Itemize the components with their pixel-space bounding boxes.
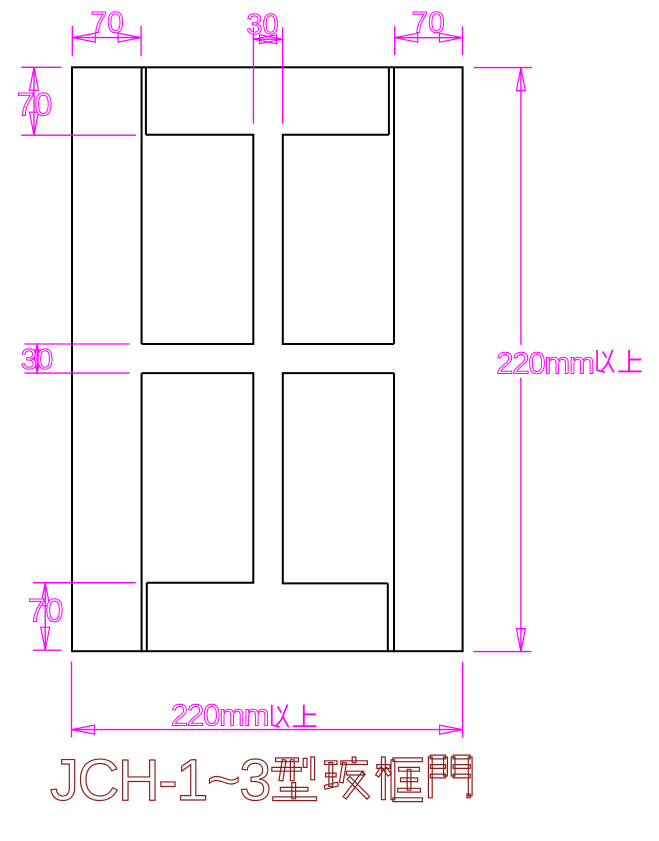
svg-text:220mm: 220mm xyxy=(496,346,593,381)
svg-text:70: 70 xyxy=(412,7,445,40)
svg-text:JCH-1~3: JCH-1~3 xyxy=(50,748,270,813)
svg-text:70: 70 xyxy=(28,593,64,629)
svg-text:70: 70 xyxy=(17,87,53,123)
svg-text:70: 70 xyxy=(91,6,124,39)
svg-text:220mm: 220mm xyxy=(171,698,268,733)
svg-text:30: 30 xyxy=(21,344,53,376)
svg-text:30: 30 xyxy=(246,9,278,41)
